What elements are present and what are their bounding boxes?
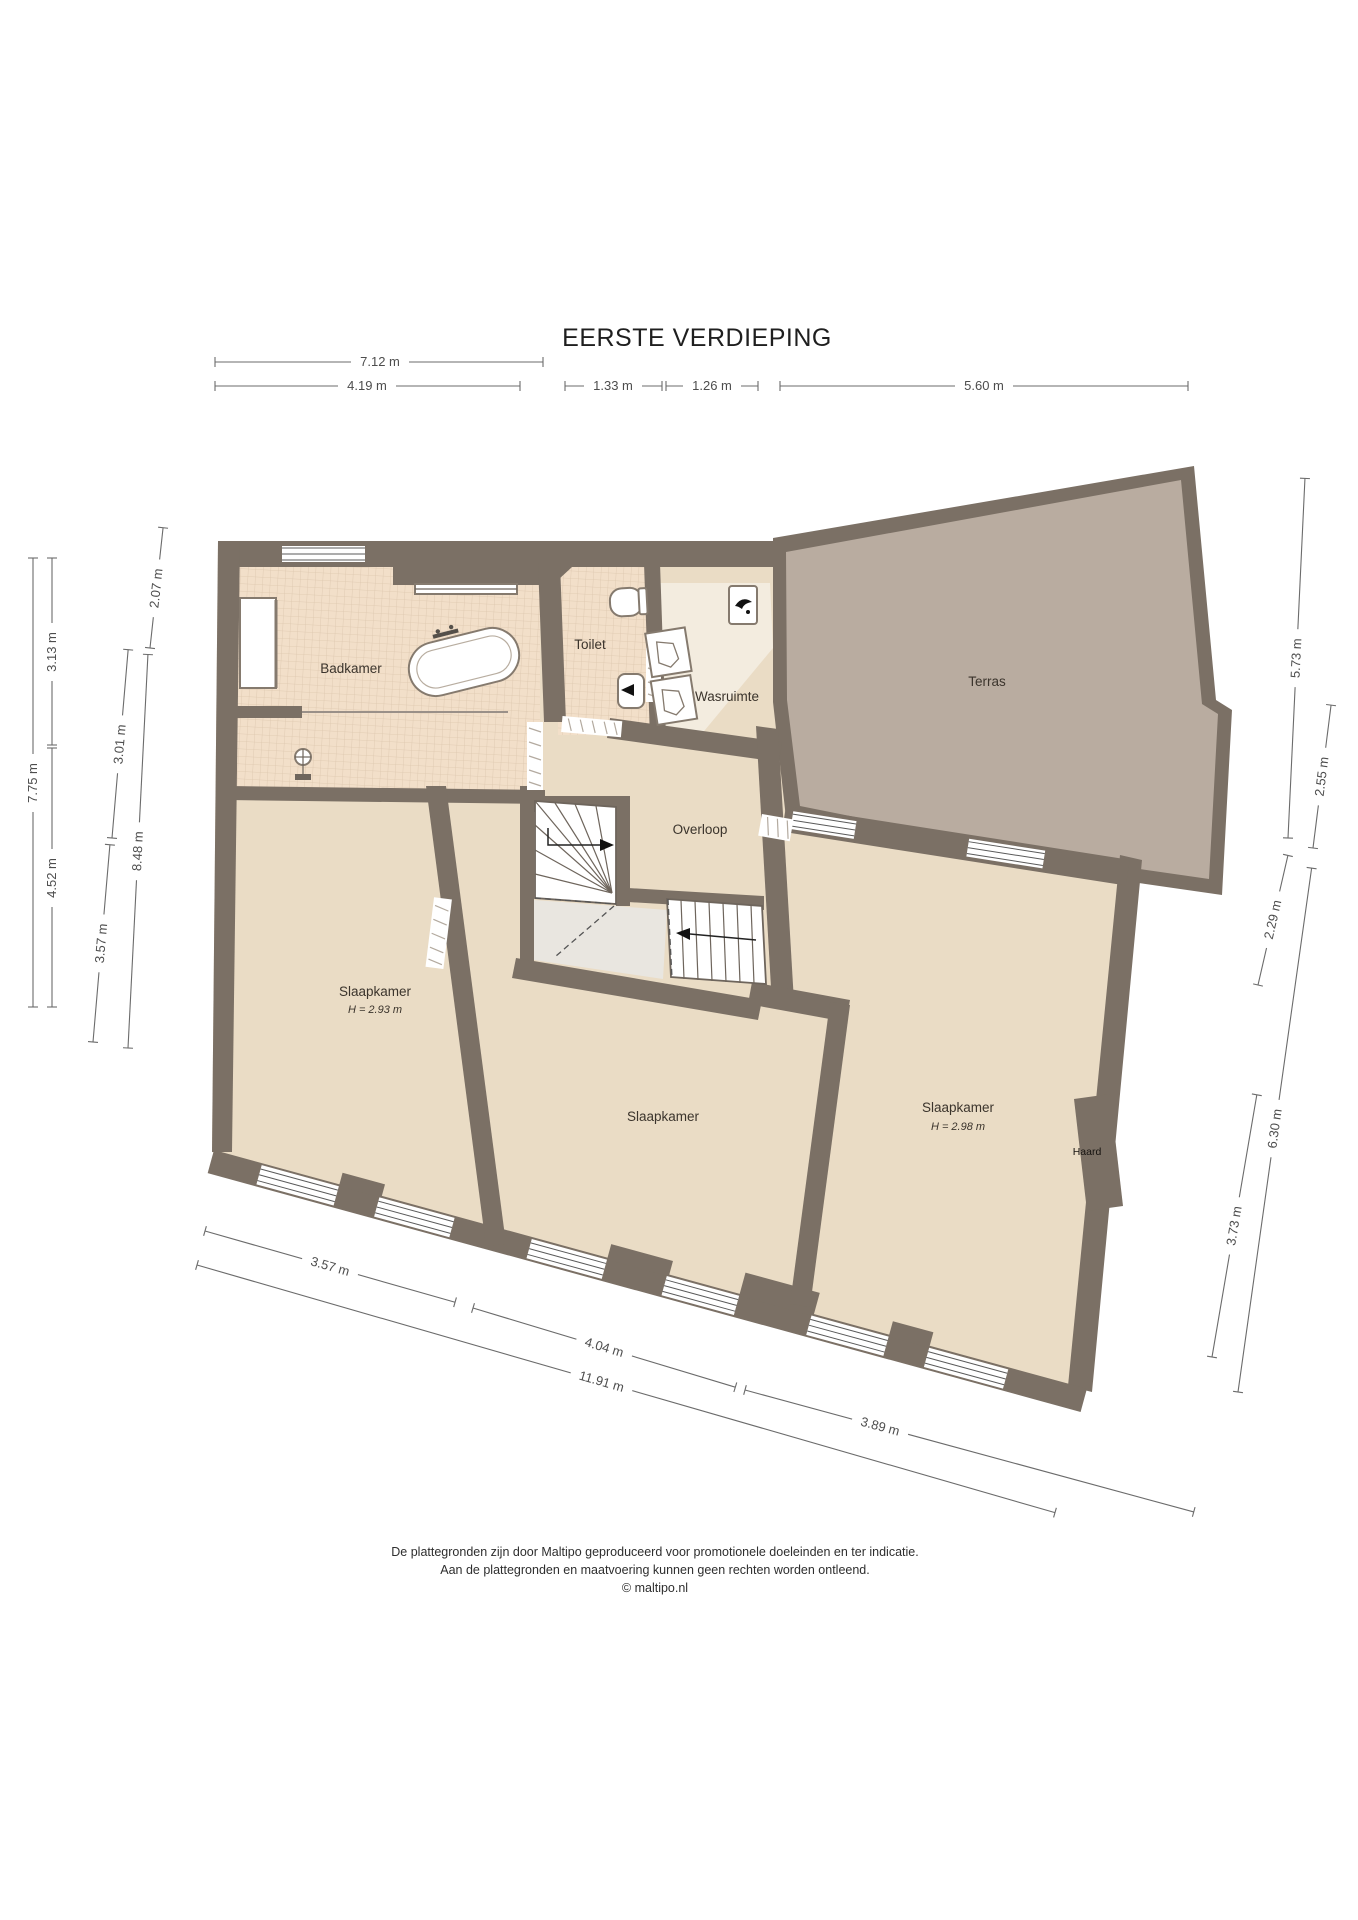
footer-copyright: © maltipo.nl	[622, 1581, 688, 1595]
room-label-slaapkamer-midden: Slaapkamer	[627, 1109, 700, 1124]
dim-top-4: 1.26 m	[666, 377, 758, 394]
dim-left-357: 3.57 m	[84, 844, 118, 1043]
dim-bottom-357: 3.57 m	[203, 1222, 458, 1310]
door-badkamer	[527, 722, 543, 790]
dim-left-207: 2.07 m	[141, 527, 171, 649]
cabinet-icon	[240, 598, 276, 688]
radiator-icon	[415, 584, 517, 594]
footer-disclaimer-line2: Aan de plattegronden en maatvoering kunn…	[440, 1563, 870, 1577]
dim-bottom-389: 3.89 m	[743, 1381, 1196, 1519]
dim-left-452: 4.52 m	[43, 748, 60, 1007]
room-height-slaapkamer-rechts: H = 2.98 m	[931, 1121, 985, 1133]
svg-text:3.73 m: 3.73 m	[1223, 1205, 1244, 1247]
room-label-toilet: Toilet	[574, 637, 606, 652]
floor-plan-page: EERSTE VERDIEPING	[0, 0, 1358, 1920]
dim-right-573: 5.73 m	[1279, 478, 1313, 838]
footer-disclaimer-line1: De plattegronden zijn door Maltipo gepro…	[391, 1545, 918, 1559]
dim-left-775: 7.75 m	[24, 558, 41, 1007]
svg-text:5.60 m: 5.60 m	[964, 378, 1004, 393]
svg-text:3.13 m: 3.13 m	[44, 632, 59, 672]
svg-text:4.52 m: 4.52 m	[44, 858, 59, 898]
svg-text:6.30 m: 6.30 m	[1264, 1108, 1284, 1149]
room-label-overloop: Overloop	[673, 822, 728, 837]
room-height-slaapkamer-links: H = 2.93 m	[348, 1004, 402, 1016]
svg-text:5.73 m: 5.73 m	[1288, 638, 1305, 678]
dim-top-5: 5.60 m	[780, 377, 1188, 394]
svg-text:7.75 m: 7.75 m	[25, 763, 40, 803]
room-label-wasruimte: Wasruimte	[695, 689, 759, 704]
winder-stair	[535, 801, 616, 904]
svg-text:3.57 m: 3.57 m	[309, 1253, 351, 1278]
svg-text:11.91 m: 11.91 m	[577, 1368, 625, 1395]
straight-stair	[667, 899, 766, 984]
room-label-terras: Terras	[968, 674, 1006, 689]
dim-left-313: 3.13 m	[43, 558, 60, 745]
svg-text:1.33 m: 1.33 m	[593, 378, 633, 393]
svg-text:7.12 m: 7.12 m	[360, 354, 400, 369]
dim-top-3: 1.33 m	[565, 377, 662, 394]
svg-text:8.48 m: 8.48 m	[129, 831, 146, 871]
tap-icon	[729, 586, 757, 624]
sink-icon	[618, 674, 644, 708]
room-label-badkamer: Badkamer	[320, 661, 382, 676]
svg-text:2.55 m: 2.55 m	[1312, 756, 1332, 797]
window-top	[282, 546, 365, 562]
svg-text:4.19 m: 4.19 m	[347, 378, 387, 393]
dim-top-1: 7.12 m	[215, 353, 543, 370]
dim-left-301: 3.01 m	[103, 649, 136, 839]
svg-text:4.04 m: 4.04 m	[583, 1334, 625, 1360]
dim-left-848: 8.48 m	[119, 654, 156, 1048]
room-label-slaapkamer-links: Slaapkamer	[339, 984, 412, 999]
dim-right-255: 2.55 m	[1304, 704, 1339, 849]
svg-text:1.26 m: 1.26 m	[692, 378, 732, 393]
page-title: EERSTE VERDIEPING	[562, 324, 832, 352]
floor-plan-svg: EERSTE VERDIEPING	[0, 0, 1358, 1920]
dim-right-373: 3.73 m	[1203, 1093, 1265, 1358]
room-label-slaapkamer-rechts: Slaapkamer	[922, 1100, 995, 1115]
toilet-icon	[609, 587, 647, 617]
dim-right-229: 2.29 m	[1249, 853, 1295, 986]
dim-top-2: 4.19 m	[215, 377, 520, 394]
room-label-haard: Haard	[1073, 1146, 1102, 1158]
